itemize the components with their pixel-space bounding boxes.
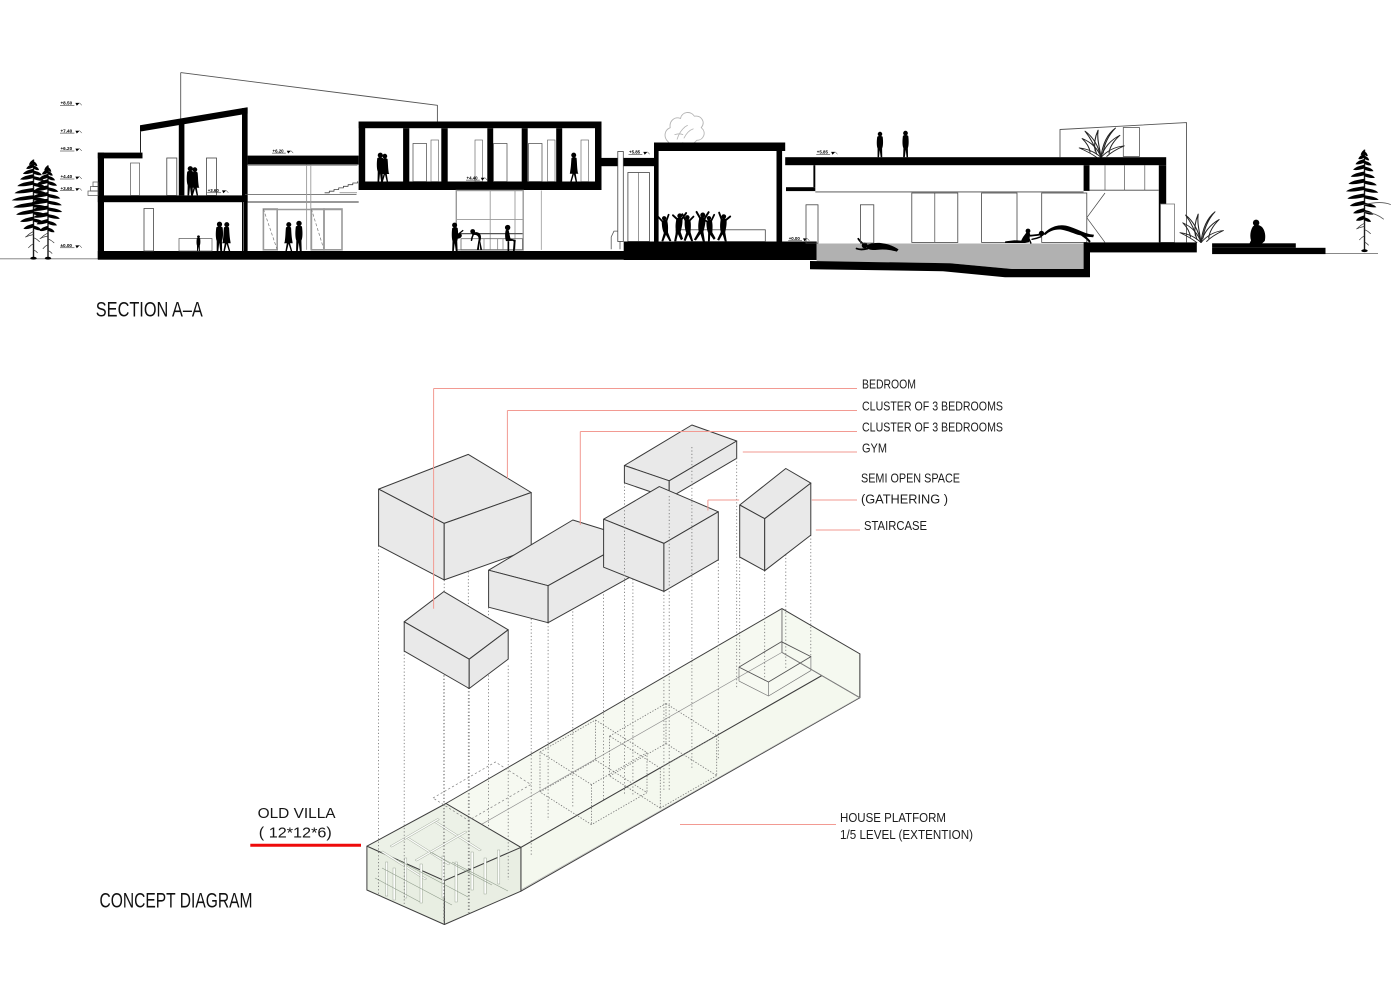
svg-text:( 12*12*6): ( 12*12*6) (259, 825, 332, 842)
svg-text:SECTION A–A: SECTION A–A (96, 299, 203, 322)
svg-text:CLUSTER OF 3 BEDROOMS: CLUSTER OF 3 BEDROOMS (862, 399, 1003, 414)
svg-text:+0.00: +0.00 (789, 236, 801, 241)
svg-text:STAIRCASE: STAIRCASE (864, 518, 927, 533)
svg-text:OLD VILLA: OLD VILLA (258, 805, 336, 822)
svg-text:+4.40: +4.40 (467, 175, 479, 180)
svg-text:(GATHERING ): (GATHERING ) (861, 492, 948, 507)
svg-text:CONCEPT DIAGRAM: CONCEPT DIAGRAM (100, 890, 253, 913)
svg-text:+6.20: +6.20 (273, 148, 285, 153)
svg-text:+5.85: +5.85 (817, 150, 829, 155)
svg-text:±0.00: ±0.00 (61, 243, 73, 248)
svg-text:SEMI OPEN SPACE: SEMI OPEN SPACE (861, 471, 960, 486)
svg-text:+3.60: +3.60 (208, 188, 220, 193)
svg-text:BEDROOM: BEDROOM (862, 377, 916, 392)
svg-text:+7.40: +7.40 (61, 128, 73, 133)
svg-text:+5.85: +5.85 (629, 150, 641, 155)
svg-text:+6.20: +6.20 (61, 146, 73, 151)
svg-text:+8.50: +8.50 (61, 101, 73, 106)
svg-text:GYM: GYM (862, 441, 887, 456)
svg-text:1/5 LEVEL (EXTENTION): 1/5 LEVEL (EXTENTION) (840, 827, 973, 842)
svg-text:CLUSTER OF 3 BEDROOMS: CLUSTER OF 3 BEDROOMS (862, 420, 1003, 435)
svg-text:+3.60: +3.60 (61, 186, 73, 191)
svg-text:+4.40: +4.40 (61, 174, 73, 179)
svg-text:HOUSE PLATFORM: HOUSE PLATFORM (840, 810, 946, 825)
